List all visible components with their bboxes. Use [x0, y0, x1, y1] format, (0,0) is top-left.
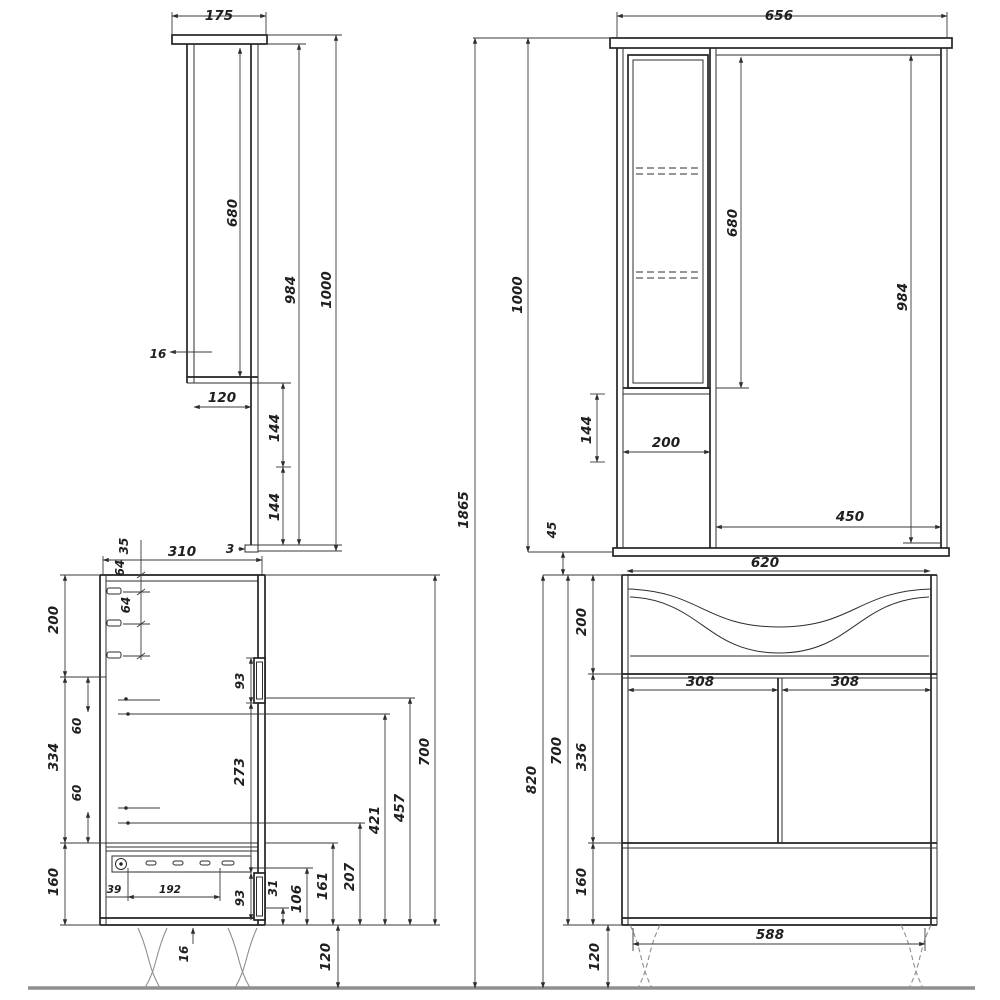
dim-mirror-side-back: 984	[283, 276, 299, 304]
dim-vanity-front-height: 700	[549, 737, 565, 765]
dim-mirror-front-mirror-width: 450	[835, 509, 864, 525]
dim-mirror-front-clearance: 45	[545, 522, 559, 540]
dim-mirror-front-interior: 680	[725, 209, 741, 237]
dim-vanity-side-screw-bottom: 60	[70, 785, 84, 802]
technical-drawing-page: 175 680 984 1000 16 120 144 144 3	[0, 0, 1000, 1000]
dim-mirror-side-gap-upper: 144	[267, 414, 283, 442]
dim-mirror-front-column-width: 200	[652, 435, 680, 451]
dim-mirror-side-width: 175	[205, 8, 233, 24]
dim-vanity-front-top-width: 620	[751, 555, 779, 571]
drawing-canvas: 175 680 984 1000 16 120 144 144 3	[0, 0, 1000, 1000]
dim-assembly-total-height: 1865	[456, 491, 472, 529]
dim-vanity-side-rail-pitch: 192	[159, 884, 181, 896]
dim-vanity-side-mid-section: 334	[46, 743, 62, 771]
mirror-cabinet-side-dimensions: 175 680 984 1000 16 120 144 144 3	[150, 8, 342, 556]
dim-vanity-side-peg-gap2: 64	[119, 597, 133, 614]
dim-vanity-front-door-right: 308	[831, 674, 859, 690]
dim-vanity-side-bottom-thickness: 16	[177, 946, 191, 963]
dim-mirror-side-depth: 120	[208, 390, 236, 406]
dim-vanity-side-peg-gap1: 64	[113, 560, 127, 577]
dim-vanity-front-base-width: 588	[756, 927, 784, 943]
dim-vanity-front-total-height: 820	[524, 766, 540, 794]
dim-vanity-front-leg-height: 120	[587, 943, 603, 971]
dim-vanity-side-421: 421	[367, 806, 383, 835]
dim-mirror-side-edge: 3	[226, 542, 234, 556]
dim-vanity-front-bottom-section: 160	[574, 868, 590, 896]
dim-vanity-side-457: 457	[392, 793, 408, 823]
dim-vanity-side-hinge-top: 93	[233, 673, 247, 690]
mirror-cabinet-side-view	[172, 35, 267, 552]
dim-vanity-side-peg-offset: 35	[117, 538, 131, 555]
vanity-front-dimensions: 620 200 308 308 336 160 700 820 588 120	[524, 555, 931, 988]
dim-vanity-side-161: 161	[315, 872, 331, 900]
dim-vanity-side-screw-top: 60	[70, 718, 84, 735]
dim-vanity-side-top-section: 200	[46, 606, 62, 634]
dim-vanity-side-hinge-bottom: 93	[233, 890, 247, 907]
dim-vanity-side-bottom-section: 160	[46, 868, 62, 896]
dim-mirror-side-interior: 680	[225, 199, 241, 227]
dim-vanity-side-depth: 310	[168, 544, 196, 560]
dim-vanity-side-height: 700	[417, 738, 433, 766]
dim-vanity-side-rail-offset: 39	[107, 884, 122, 896]
dim-vanity-front-door-left: 308	[686, 674, 714, 690]
dim-mirror-side-total: 1000	[319, 271, 335, 309]
dim-vanity-front-sink-section: 200	[574, 608, 590, 636]
dim-mirror-side-gap-lower: 144	[267, 493, 283, 521]
dim-mirror-front-total: 1000	[510, 276, 526, 314]
dim-vanity-front-door-section: 336	[574, 743, 590, 771]
dim-vanity-side-hinge-span: 273	[232, 758, 248, 786]
dim-mirror-front-lower-gap: 144	[579, 416, 595, 444]
dim-mirror-front-width: 656	[765, 8, 793, 24]
dim-vanity-side-106: 106	[289, 885, 305, 913]
dim-vanity-side-207: 207	[342, 862, 358, 891]
dim-mirror-side-wall: 16	[150, 347, 167, 361]
dim-vanity-side-31: 31	[266, 880, 280, 897]
vanity-side-dimensions: 310 35 64 64 200 334 160 60 60 93 273 93…	[46, 538, 440, 988]
dim-mirror-front-mirror-height: 984	[895, 283, 911, 311]
dim-vanity-side-leg-height: 120	[318, 943, 334, 971]
